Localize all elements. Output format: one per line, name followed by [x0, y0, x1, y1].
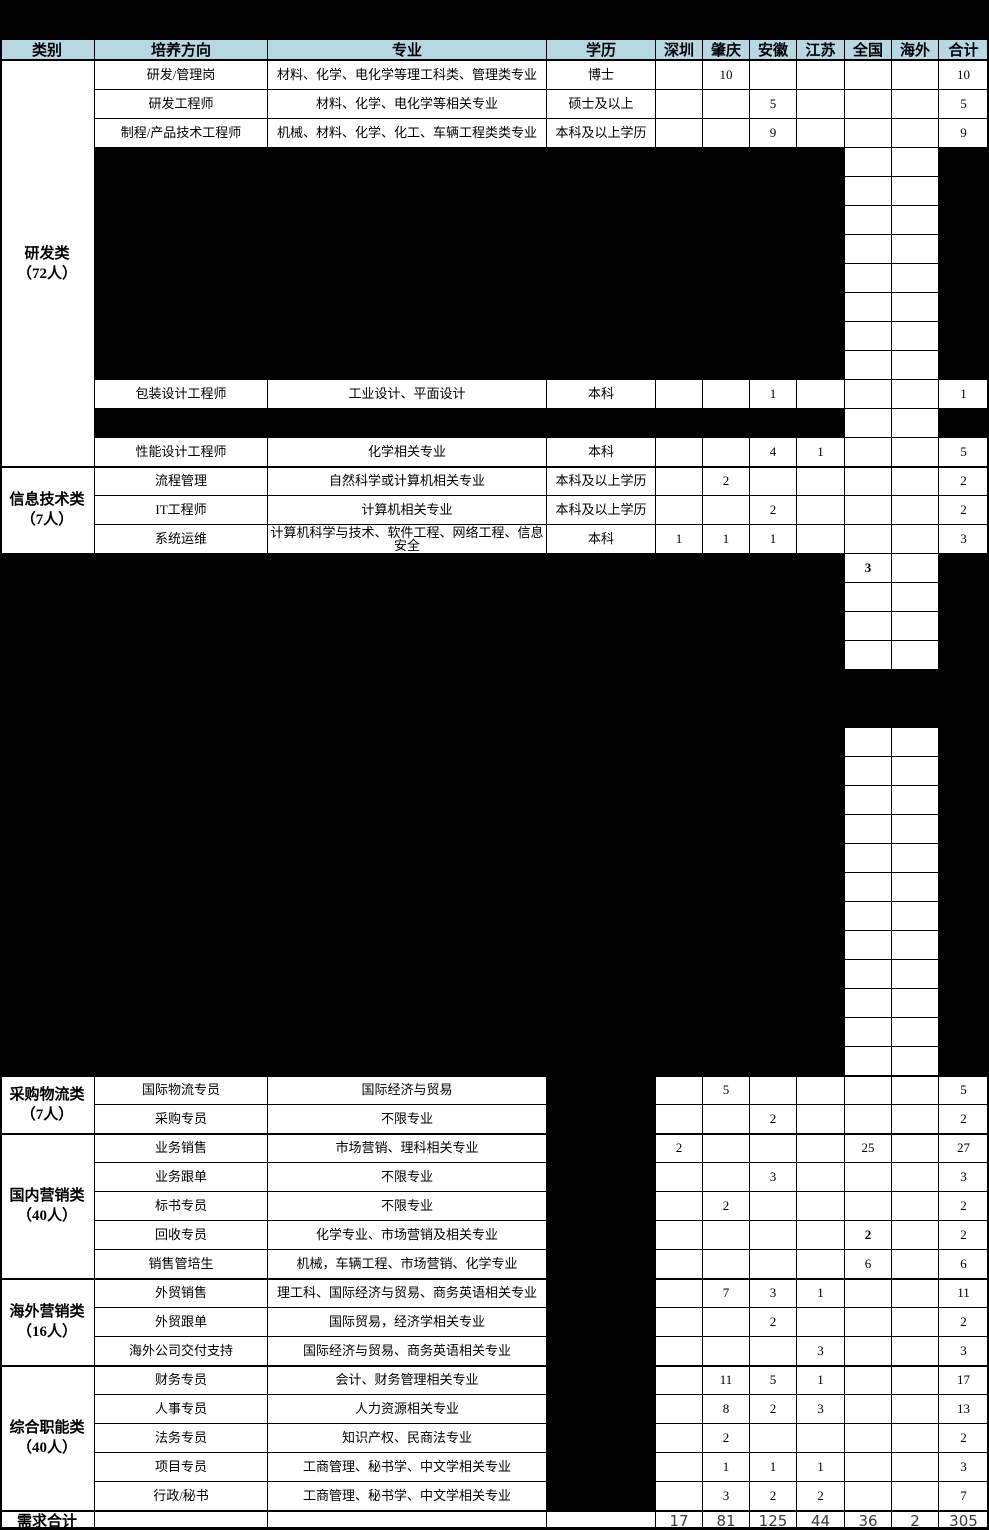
cell-nationwide — [845, 1366, 892, 1395]
cell-nationwide — [845, 148, 892, 177]
cell-shenzhen — [656, 1453, 703, 1482]
cell-zhaoqing: 11 — [703, 1366, 750, 1395]
cell-overseas — [892, 641, 939, 670]
cell-shenzhen — [656, 496, 703, 525]
cell-zhaoqing: 10 — [703, 61, 750, 90]
cell-overseas — [892, 612, 939, 641]
header-cell-nationwide: 全国 — [845, 40, 892, 61]
cell-total: 2 — [939, 1221, 989, 1250]
cell-major: 化学相关专业 — [268, 438, 547, 467]
cell-direction: 销售管培生 — [95, 1250, 268, 1279]
cell-anhui — [750, 1250, 797, 1279]
frame-left — [0, 40, 2, 1530]
cell-jiangsu — [797, 1076, 845, 1105]
section-line-totals — [0, 1510, 989, 1512]
cell-overseas — [892, 177, 939, 206]
cell-overseas — [892, 728, 939, 757]
cell-shenzhen — [656, 119, 703, 148]
cell-shenzhen — [656, 1337, 703, 1366]
category-cell: 采购物流类 （7人） — [0, 1076, 95, 1134]
cell-jiangsu — [797, 1308, 845, 1337]
cell-overseas — [892, 322, 939, 351]
cell-shenzhen — [656, 1192, 703, 1221]
cell-nationwide — [845, 757, 892, 786]
cell-anhui: 1 — [750, 380, 797, 409]
redaction-block-c-left — [0, 554, 845, 1076]
cell-nationwide — [845, 583, 892, 612]
cell-nationwide — [845, 293, 892, 322]
cell-direction: 法务专员 — [95, 1424, 268, 1453]
cell-jiangsu: 3 — [797, 1395, 845, 1424]
cell-total: 2 — [939, 1105, 989, 1134]
cell-overseas — [892, 409, 939, 438]
cell-jiangsu: 1 — [797, 1453, 845, 1482]
cell-zhaoqing — [703, 90, 750, 119]
cell-overseas — [892, 873, 939, 902]
cell-shenzhen — [656, 1424, 703, 1453]
cell-nationwide: 2 — [845, 1221, 892, 1250]
cell-anhui — [750, 1134, 797, 1163]
cell-direction: IT工程师 — [95, 496, 268, 525]
cell-nationwide — [845, 873, 892, 902]
cell-total: 7 — [939, 1482, 989, 1511]
cell-zhaoqing — [703, 438, 750, 467]
cell-zhaoqing — [703, 119, 750, 148]
cell-nationwide — [845, 1337, 892, 1366]
cell-jiangsu — [797, 1105, 845, 1134]
cell-total: 2 — [939, 496, 989, 525]
cell-degree: 本科 — [547, 525, 656, 554]
redaction-block-c-mid — [845, 670, 939, 728]
cell-overseas — [892, 1250, 939, 1279]
cell-shenzhen: 1 — [656, 525, 703, 554]
header-cell-anhui: 安徽 — [750, 40, 797, 61]
cell-jiangsu — [797, 61, 845, 90]
cell-zhaoqing — [703, 1134, 750, 1163]
cell-direction: 项目专员 — [95, 1453, 268, 1482]
cell-overseas — [892, 380, 939, 409]
cell-degree: 本科 — [547, 380, 656, 409]
cell-nationwide — [845, 264, 892, 293]
cell-overseas — [892, 119, 939, 148]
cell-overseas — [892, 90, 939, 119]
cell-overseas — [892, 902, 939, 931]
header-cell-jiangsu: 江苏 — [797, 40, 845, 61]
cell-jiangsu — [797, 467, 845, 496]
cell-major: 自然科学或计算机相关专业 — [268, 467, 547, 496]
cell-overseas — [892, 989, 939, 1018]
header-cell-total: 合计 — [939, 40, 989, 61]
cell-direction: 系统运维 — [95, 525, 268, 554]
cell-anhui — [750, 467, 797, 496]
cell-jiangsu: 3 — [797, 1337, 845, 1366]
cell-nationwide — [845, 786, 892, 815]
cell-total: 3 — [939, 1453, 989, 1482]
cell-jiangsu — [797, 496, 845, 525]
category-cell: 海外营销类 （16人） — [0, 1279, 95, 1366]
cell-shenzhen — [656, 1279, 703, 1308]
cell-direction: 标书专员 — [95, 1192, 268, 1221]
cell-nationwide — [845, 902, 892, 931]
cell-anhui: 2 — [750, 496, 797, 525]
cell-overseas — [892, 235, 939, 264]
cell-direction: 业务跟单 — [95, 1163, 268, 1192]
redaction-block-a-total — [939, 148, 989, 380]
cell-jiangsu — [797, 1221, 845, 1250]
cell-shenzhen — [656, 1163, 703, 1192]
cell-overseas — [892, 525, 939, 554]
cell-total: 2 — [939, 1424, 989, 1453]
cell-major: 工商管理、秘书学、中文学相关专业 — [268, 1453, 547, 1482]
cell-nationwide — [845, 815, 892, 844]
cell-total: 3 — [939, 1337, 989, 1366]
cell-overseas — [892, 293, 939, 322]
cell-anhui — [750, 1424, 797, 1453]
cell-anhui — [750, 1076, 797, 1105]
cell-overseas — [892, 1279, 939, 1308]
cell-nationwide — [845, 496, 892, 525]
cell-nationwide — [845, 61, 892, 90]
cell-overseas — [892, 1395, 939, 1424]
cell-overseas — [892, 583, 939, 612]
cell-overseas — [892, 1076, 939, 1105]
cell-overseas — [892, 1134, 939, 1163]
cell-nationwide: 6 — [845, 1250, 892, 1279]
cell-shenzhen — [656, 1221, 703, 1250]
cell-nationwide — [845, 467, 892, 496]
cell-total: 27 — [939, 1134, 989, 1163]
cell-zhaoqing: 7 — [703, 1279, 750, 1308]
cell-jiangsu: 1 — [797, 438, 845, 467]
cell-zhaoqing: 1 — [703, 525, 750, 554]
cell-overseas — [892, 844, 939, 873]
cell-degree: 本科及以上学历 — [547, 496, 656, 525]
cell-overseas — [892, 931, 939, 960]
category-cell: 信息技术类 （7人） — [0, 467, 95, 554]
cell-anhui: 2 — [750, 1105, 797, 1134]
cell-nationwide — [845, 960, 892, 989]
cell-anhui: 5 — [750, 90, 797, 119]
cell-nationwide — [845, 844, 892, 873]
redaction-block-b-left — [95, 409, 845, 438]
cell-major: 计算机相关专业 — [268, 496, 547, 525]
cell-nationwide — [845, 1047, 892, 1076]
cell-nationwide — [845, 1395, 892, 1424]
cell-overseas — [892, 496, 939, 525]
cell-jiangsu: 1 — [797, 1366, 845, 1395]
cell-nationwide — [845, 1482, 892, 1511]
cell-nationwide — [845, 1453, 892, 1482]
cell-jiangsu — [797, 119, 845, 148]
cell-shenzhen — [656, 90, 703, 119]
cell-direction: 外贸跟单 — [95, 1308, 268, 1337]
cell-nationwide — [845, 1192, 892, 1221]
cell-nationwide — [845, 1279, 892, 1308]
category-cell: 综合职能类 （40人） — [0, 1366, 95, 1511]
cell-nationwide — [845, 1163, 892, 1192]
cell-zhaoqing: 1 — [703, 1453, 750, 1482]
cell-nationwide — [845, 1076, 892, 1105]
cell-shenzhen — [656, 1366, 703, 1395]
cell-anhui: 2 — [750, 1308, 797, 1337]
cell-overseas — [892, 1221, 939, 1250]
cell-overseas — [892, 1105, 939, 1134]
cell-nationwide — [845, 322, 892, 351]
header-cell-overseas: 海外 — [892, 40, 939, 61]
header-cell-category: 类别 — [0, 40, 95, 61]
cell-total: 6 — [939, 1250, 989, 1279]
cell-direction: 外贸销售 — [95, 1279, 268, 1308]
cell-shenzhen — [656, 1395, 703, 1424]
cell-major: 市场营销、理科相关专业 — [268, 1134, 547, 1163]
cell-anhui — [750, 1337, 797, 1366]
cell-jiangsu: 1 — [797, 1279, 845, 1308]
cell-zhaoqing — [703, 496, 750, 525]
cell-overseas — [892, 264, 939, 293]
cell-overseas — [892, 61, 939, 90]
cell-anhui: 2 — [750, 1482, 797, 1511]
cell-anhui: 5 — [750, 1366, 797, 1395]
cell-nationwide — [845, 931, 892, 960]
cell-major: 化学专业、市场营销及相关专业 — [268, 1221, 547, 1250]
cell-major: 不限专业 — [268, 1192, 547, 1221]
cell-degree: 硕士及以上 — [547, 90, 656, 119]
cell-overseas — [892, 1337, 939, 1366]
cell-shenzhen — [656, 61, 703, 90]
cell-direction: 业务销售 — [95, 1134, 268, 1163]
category-cell: 国内营销类 （40人） — [0, 1134, 95, 1279]
cell-jiangsu: 2 — [797, 1482, 845, 1511]
cell-major: 人力资源相关专业 — [268, 1395, 547, 1424]
cell-total: 2 — [939, 1308, 989, 1337]
cell-nationwide — [845, 1105, 892, 1134]
redaction-block-a-left — [95, 148, 845, 380]
cell-zhaoqing: 3 — [703, 1482, 750, 1511]
cell-shenzhen — [656, 467, 703, 496]
cell-direction: 包装设计工程师 — [95, 380, 268, 409]
cell-nationwide — [845, 380, 892, 409]
cell-direction: 采购专员 — [95, 1105, 268, 1134]
cell-shenzhen — [656, 1105, 703, 1134]
cell-degree: 本科及以上学历 — [547, 119, 656, 148]
cell-anhui: 3 — [750, 1163, 797, 1192]
cell-total: 10 — [939, 61, 989, 90]
cell-major: 工业设计、平面设计 — [268, 380, 547, 409]
section-line-function — [0, 1365, 989, 1367]
cell-shenzhen — [656, 1482, 703, 1511]
cell-total: 3 — [939, 525, 989, 554]
cell-direction: 研发工程师 — [95, 90, 268, 119]
cell-overseas — [892, 1453, 939, 1482]
cell-nationwide — [845, 235, 892, 264]
cell-nationwide — [845, 525, 892, 554]
cell-total: 2 — [939, 467, 989, 496]
cell-nationwide — [845, 177, 892, 206]
cell-major: 机械，车辆工程、市场营销、化学专业 — [268, 1250, 547, 1279]
cell-jiangsu — [797, 1192, 845, 1221]
cell-overseas — [892, 1308, 939, 1337]
cell-total: 5 — [939, 438, 989, 467]
header-cell-major: 专业 — [268, 40, 547, 61]
cell-major: 不限专业 — [268, 1163, 547, 1192]
cell-total: 5 — [939, 1076, 989, 1105]
redaction-degree-column — [547, 1076, 656, 1511]
header-cell-direction: 培养方向 — [95, 40, 268, 61]
cell-total: 17 — [939, 1366, 989, 1395]
header-cell-degree: 学历 — [547, 40, 656, 61]
recruitment-demand-table: 类别 培养方向 专业 学历 深圳 肇庆 安徽 江苏 全国 海外 合计 研发/管理… — [0, 0, 989, 1530]
cell-anhui — [750, 1192, 797, 1221]
cell-nationwide — [845, 119, 892, 148]
cell-shenzhen — [656, 1308, 703, 1337]
cell-major: 材料、化学、电化学等理工科类、管理类专业 — [268, 61, 547, 90]
cell-total: 11 — [939, 1279, 989, 1308]
cell-anhui: 3 — [750, 1279, 797, 1308]
cell-nationwide: 25 — [845, 1134, 892, 1163]
cell-major: 不限专业 — [268, 1105, 547, 1134]
cell-nationwide — [845, 641, 892, 670]
section-line-it — [0, 466, 989, 468]
cell-zhaoqing — [703, 1221, 750, 1250]
header-cell-zhaoqing: 肇庆 — [703, 40, 750, 61]
cell-direction: 财务专员 — [95, 1366, 268, 1395]
cell-overseas — [892, 467, 939, 496]
cell-overseas — [892, 1366, 939, 1395]
cell-major: 国际经济与贸易 — [268, 1076, 547, 1105]
cell-total: 3 — [939, 1163, 989, 1192]
cell-shenzhen — [656, 438, 703, 467]
cell-jiangsu — [797, 1134, 845, 1163]
cell-major: 国际贸易，经济学相关专业 — [268, 1308, 547, 1337]
cell-overseas — [892, 757, 939, 786]
cell-zhaoqing — [703, 1163, 750, 1192]
cell-total: 1 — [939, 380, 989, 409]
cell-nationwide — [845, 1308, 892, 1337]
cell-nationwide — [845, 1424, 892, 1453]
cell-overseas — [892, 554, 939, 583]
cell-shenzhen — [656, 1250, 703, 1279]
cell-nationwide — [845, 438, 892, 467]
cell-anhui — [750, 61, 797, 90]
cell-zhaoqing: 2 — [703, 1192, 750, 1221]
cell-direction: 海外公司交付支持 — [95, 1337, 268, 1366]
redaction-block-c-total — [939, 554, 989, 1076]
section-line-domestic — [0, 1133, 989, 1135]
cell-major: 会计、财务管理相关专业 — [268, 1366, 547, 1395]
cell-overseas — [892, 438, 939, 467]
cell-zhaoqing — [703, 1308, 750, 1337]
cell-total: 9 — [939, 119, 989, 148]
redaction-title-strip — [0, 0, 989, 40]
header-cell-shenzhen: 深圳 — [656, 40, 703, 61]
cell-overseas — [892, 351, 939, 380]
cell-overseas — [892, 1424, 939, 1453]
cell-major: 计算机科学与技术、软件工程、网络工程、信息安全 — [268, 525, 547, 554]
cell-direction: 性能设计工程师 — [95, 438, 268, 467]
cell-nationwide — [845, 1018, 892, 1047]
cell-zhaoqing: 8 — [703, 1395, 750, 1424]
cell-major: 机械、材料、化学、化工、车辆工程类类专业 — [268, 119, 547, 148]
cell-direction: 国际物流专员 — [95, 1076, 268, 1105]
cell-anhui: 9 — [750, 119, 797, 148]
cell-zhaoqing — [703, 1105, 750, 1134]
cell-jiangsu — [797, 1424, 845, 1453]
cell-anhui: 1 — [750, 1453, 797, 1482]
cell-major: 国际经济与贸易、商务英语相关专业 — [268, 1337, 547, 1366]
cell-jiangsu — [797, 1250, 845, 1279]
cell-zhaoqing — [703, 1250, 750, 1279]
cell-nationwide — [845, 728, 892, 757]
section-line-purchase — [0, 1075, 989, 1077]
cell-major: 知识产权、民商法专业 — [268, 1424, 547, 1453]
cell-nationwide — [845, 206, 892, 235]
cell-direction: 人事专员 — [95, 1395, 268, 1424]
cell-overseas — [892, 206, 939, 235]
cell-zhaoqing: 2 — [703, 467, 750, 496]
cell-overseas — [892, 1163, 939, 1192]
cell-direction: 研发/管理岗 — [95, 61, 268, 90]
cell-shenzhen — [656, 1076, 703, 1105]
cell-overseas — [892, 1482, 939, 1511]
cell-degree: 本科 — [547, 438, 656, 467]
cell-shenzhen — [656, 380, 703, 409]
redaction-block-b-total — [939, 409, 989, 438]
cell-nationwide: 3 — [845, 554, 892, 583]
cell-zhaoqing: 2 — [703, 1424, 750, 1453]
cell-nationwide — [845, 351, 892, 380]
cell-degree: 博士 — [547, 61, 656, 90]
cell-degree: 本科及以上学历 — [547, 467, 656, 496]
cell-major: 材料、化学、电化学等相关专业 — [268, 90, 547, 119]
cell-jiangsu — [797, 380, 845, 409]
cell-jiangsu — [797, 1163, 845, 1192]
cell-total: 13 — [939, 1395, 989, 1424]
cell-shenzhen: 2 — [656, 1134, 703, 1163]
cell-jiangsu — [797, 90, 845, 119]
cell-anhui: 1 — [750, 525, 797, 554]
cell-anhui — [750, 1221, 797, 1250]
cell-overseas — [892, 1047, 939, 1076]
cell-nationwide — [845, 612, 892, 641]
cell-direction: 流程管理 — [95, 467, 268, 496]
cell-zhaoqing — [703, 380, 750, 409]
cell-total: 2 — [939, 1192, 989, 1221]
cell-direction: 回收专员 — [95, 1221, 268, 1250]
cell-major: 理工科、国际经济与贸易、商务英语相关专业 — [268, 1279, 547, 1308]
cell-overseas — [892, 1018, 939, 1047]
cell-direction: 制程/产品技术工程师 — [95, 119, 268, 148]
cell-overseas — [892, 148, 939, 177]
cell-nationwide — [845, 90, 892, 119]
cell-anhui: 2 — [750, 1395, 797, 1424]
cell-direction: 行政/秘书 — [95, 1482, 268, 1511]
cell-zhaoqing — [703, 1337, 750, 1366]
cell-overseas — [892, 1192, 939, 1221]
cell-anhui: 4 — [750, 438, 797, 467]
category-cell: 研发类 （72人） — [0, 61, 95, 467]
cell-nationwide — [845, 409, 892, 438]
cell-overseas — [892, 786, 939, 815]
cell-zhaoqing: 5 — [703, 1076, 750, 1105]
cell-overseas — [892, 815, 939, 844]
section-line-overseas — [0, 1278, 989, 1280]
cell-total: 5 — [939, 90, 989, 119]
cell-jiangsu — [797, 525, 845, 554]
cell-nationwide — [845, 989, 892, 1018]
cell-major: 工商管理、秘书学、中文学相关专业 — [268, 1482, 547, 1511]
cell-overseas — [892, 960, 939, 989]
